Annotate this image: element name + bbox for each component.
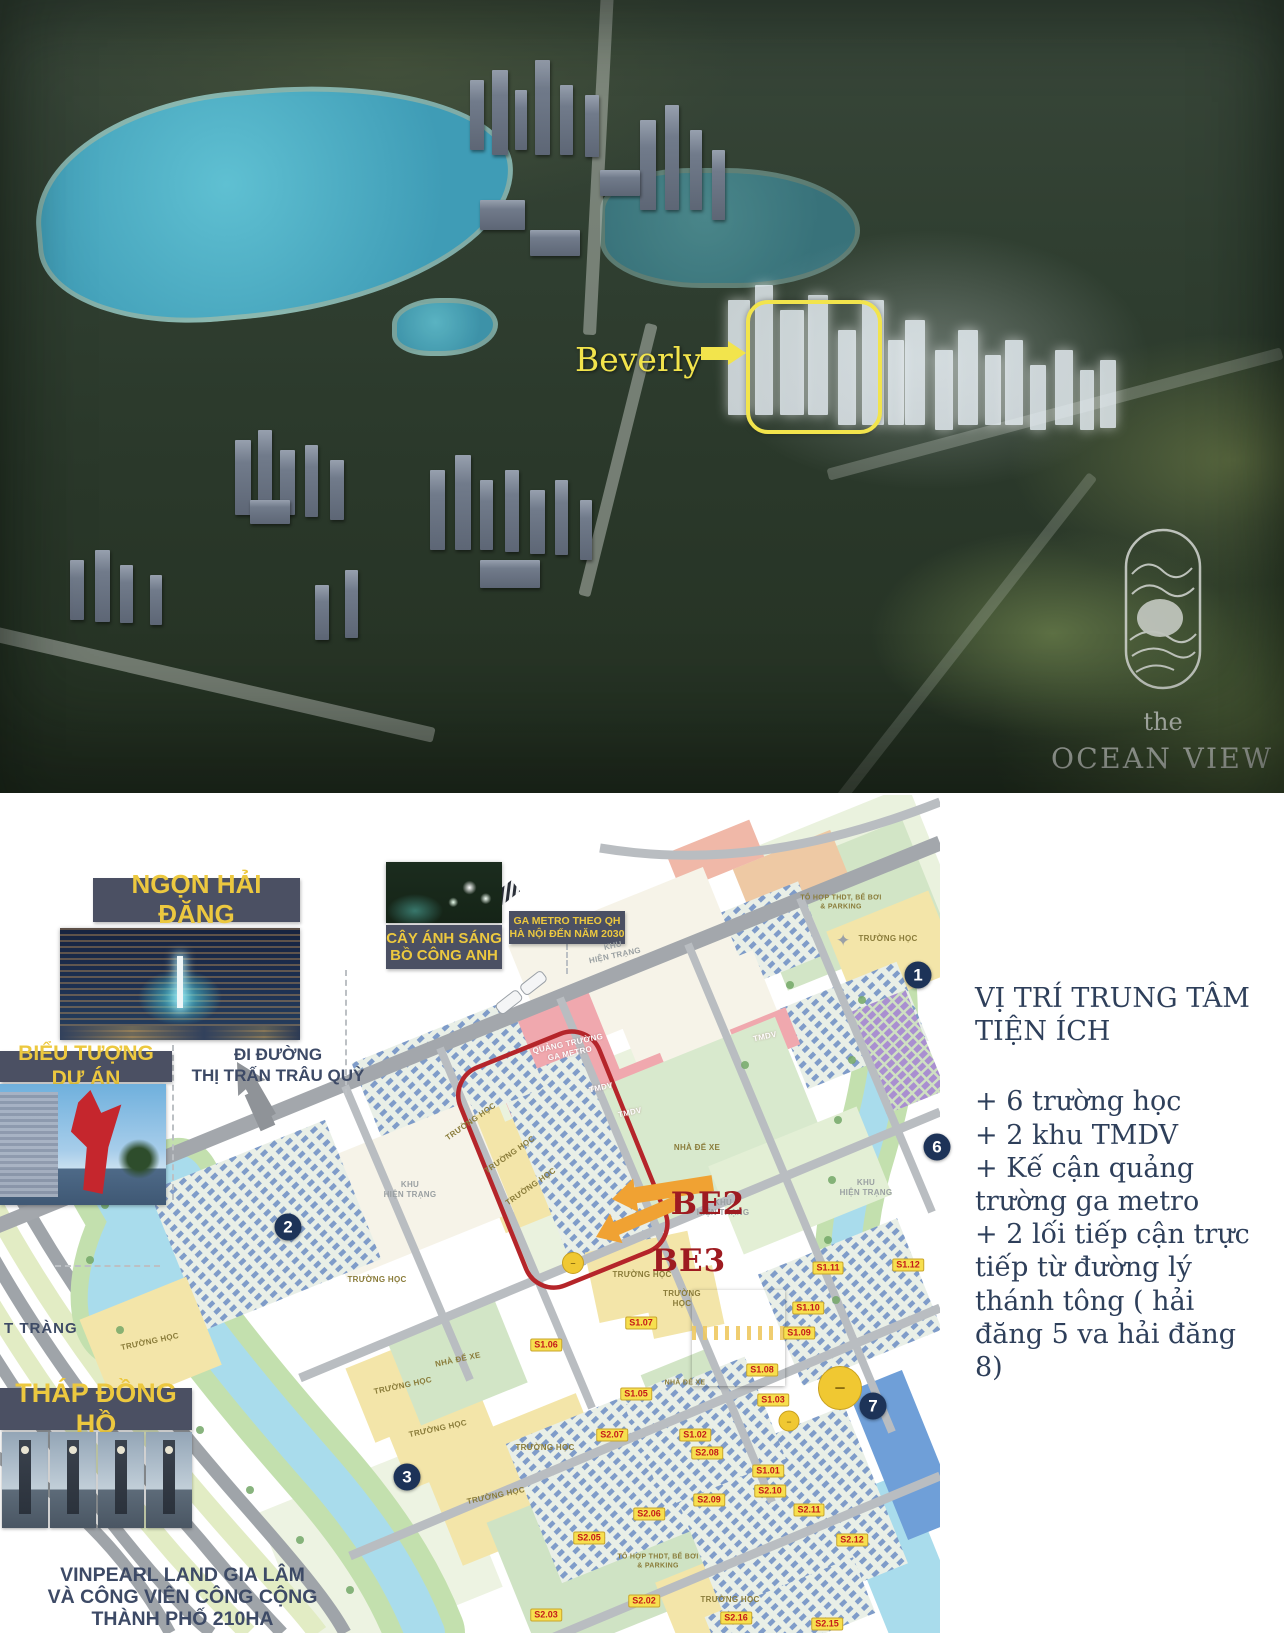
city-tower (470, 80, 484, 150)
callout-label: NGỌN HẢI ĐĂNG (93, 870, 300, 930)
road (578, 323, 657, 598)
clock-tower-photo (50, 1432, 96, 1528)
aerial-render: Beverly the OCEAN VIEW (0, 0, 1284, 793)
note-line: THỊ TRẤN TRÂU QUỲ (188, 1065, 368, 1086)
note-line: THÀNH PHỐ 210HA (30, 1609, 335, 1631)
note-line: VINPEARL LAND GIA LÂM (30, 1565, 335, 1587)
ngon-hai-dang-photo (60, 928, 300, 1040)
ocean-view-tower (1005, 340, 1023, 425)
vinpearl-note: VINPEARL LAND GIA LÂM VÀ CÔNG VIÊN CÔNG … (30, 1565, 335, 1630)
palm-tree-icon (118, 1139, 160, 1179)
city-tower (258, 430, 272, 515)
clock-tower-photo (98, 1432, 144, 1528)
city-tower (555, 480, 568, 555)
info-bullet: + 2 khu TMDV (975, 1119, 1250, 1152)
callout-bieu-tuong: BIỂU TƯỢNG DỰ ÁN (0, 1051, 172, 1082)
city-tower (330, 460, 344, 520)
city-tower (530, 230, 580, 256)
city-tower (665, 105, 679, 210)
ocean-view-tower (985, 355, 1001, 425)
city-tower (535, 60, 550, 155)
shophouse-facade (692, 1326, 785, 1340)
clock-tower-photo (146, 1432, 192, 1528)
city-tower (150, 575, 162, 625)
city-tower (640, 120, 656, 210)
ocean-view-tower (1100, 360, 1116, 428)
tower-silhouette (0, 1092, 58, 1197)
ocean-view-tower (1055, 350, 1073, 425)
city-tower (515, 90, 527, 150)
city-tower (120, 565, 133, 623)
ocean-view-tower (1030, 365, 1046, 430)
callout-line: HÀ NỘI ĐẾN NĂM 2030 (510, 928, 625, 940)
building-clusters (0, 0, 1284, 793)
beverly-highlight-box (746, 300, 882, 434)
city-tower (492, 70, 508, 155)
ocean-view-tower (808, 295, 828, 415)
be2-label: BE2 (671, 1186, 745, 1222)
road (826, 347, 1283, 480)
road (0, 622, 436, 742)
city-tower (690, 130, 702, 210)
info-panel: VỊ TRÍ TRUNG TÂM TIỆN ÍCH + 6 trường học… (975, 982, 1250, 1384)
callout-line: CÂY ÁNH SÁNG (386, 930, 502, 947)
city-tower (430, 470, 445, 550)
info-bullet: + Kế cận quảng trường ga metro (975, 1152, 1250, 1218)
pond (392, 298, 498, 356)
be3-label: BE3 (652, 1243, 726, 1279)
logo-the-text: the (1143, 708, 1182, 736)
leader-line (172, 1045, 174, 1200)
city-tower (250, 500, 290, 524)
city-tower (70, 560, 84, 620)
logo-name-text: OCEAN VIEW (1051, 742, 1275, 775)
city-tower (712, 150, 725, 220)
city-tower (315, 585, 329, 640)
city-tower (235, 440, 251, 515)
ocean-view-tower (935, 350, 953, 430)
leader-line (566, 944, 568, 974)
callout-ngon-hai-dang: NGỌN HẢI ĐĂNG (93, 878, 300, 922)
ocean-view-logo: the OCEAN VIEW (1048, 522, 1278, 777)
ocean-view-tower (838, 330, 856, 425)
lake-east (600, 168, 860, 288)
city-tower (505, 470, 519, 552)
city-tower (95, 550, 110, 622)
city-tower (530, 490, 545, 554)
city-tower (455, 455, 471, 550)
bat-trang-label: T TRÀNG (4, 1320, 78, 1339)
city-tower (480, 480, 493, 550)
shophouse-photo (692, 1290, 785, 1386)
beverly-label: Beverly (575, 340, 700, 379)
road (824, 472, 1097, 793)
callout-ga-metro: GA METRO THEO QH HÀ NỘI ĐẾN NĂM 2030 (509, 911, 625, 944)
info-bullet: + 2 lối tiếp cận trực tiếp từ đường lý t… (975, 1218, 1250, 1384)
ocean-view-tower (862, 300, 884, 425)
bieu-tuong-photo (0, 1084, 166, 1205)
ocean-view-tower (958, 330, 978, 425)
page: Beverly the OCEAN VIEW (0, 0, 1284, 1633)
note-line: ĐI ĐƯỜNG (188, 1044, 368, 1065)
ocean-view-tower (888, 340, 904, 425)
street-lights (60, 1026, 300, 1040)
callout-cay-anh-sang: CÂY ÁNH SÁNG BỒ CÔNG ANH (386, 925, 502, 969)
lighthouse-icon (177, 956, 183, 1008)
city-tower (580, 500, 592, 560)
ocean-view-tower (1080, 370, 1094, 430)
clock-tower-photo (2, 1432, 48, 1528)
info-title: VỊ TRÍ TRUNG TÂM TIỆN ÍCH (975, 982, 1250, 1048)
city-tower (600, 170, 640, 196)
ocean-view-glow (710, 230, 1150, 490)
city-tower (280, 450, 295, 515)
note-line: VÀ CÔNG VIÊN CÔNG CỘNG (30, 1587, 335, 1609)
city-tower (480, 200, 525, 230)
ocean-view-tower (755, 285, 773, 415)
info-title-line: VỊ TRÍ TRUNG TÂM (975, 982, 1250, 1015)
red-sculpture-icon (58, 1090, 130, 1194)
leader-line (55, 1265, 160, 1267)
callout-line: BỒ CÔNG ANH (390, 947, 498, 964)
beverly-arrow-icon (701, 347, 728, 360)
city-tower (480, 560, 540, 588)
ocean-view-tower (780, 310, 804, 415)
compass-icon: ✦ (836, 931, 850, 951)
info-title-line: TIỆN ÍCH (975, 1015, 1250, 1048)
ocean-view-tower (728, 300, 750, 415)
city-tower (585, 95, 599, 157)
road (583, 0, 614, 335)
city-tower (305, 445, 318, 517)
ocean-view-tower (905, 320, 925, 425)
di-duong-note: ĐI ĐƯỜNG THỊ TRẤN TRÂU QUỲ (188, 1044, 368, 1087)
lake (26, 68, 524, 337)
callout-label: THÁP ĐỒNG HỒ (0, 1378, 192, 1440)
beverly-arrow-head-icon (728, 341, 746, 365)
callout-thap-dong-ho: THÁP ĐỒNG HỒ (0, 1388, 192, 1430)
city-tower (345, 570, 358, 638)
cay-anh-sang-photo (386, 862, 502, 923)
city-tower (560, 85, 573, 155)
info-bullet: + 6 trường học (975, 1085, 1250, 1118)
callout-line: GA METRO THEO QH (514, 915, 621, 927)
